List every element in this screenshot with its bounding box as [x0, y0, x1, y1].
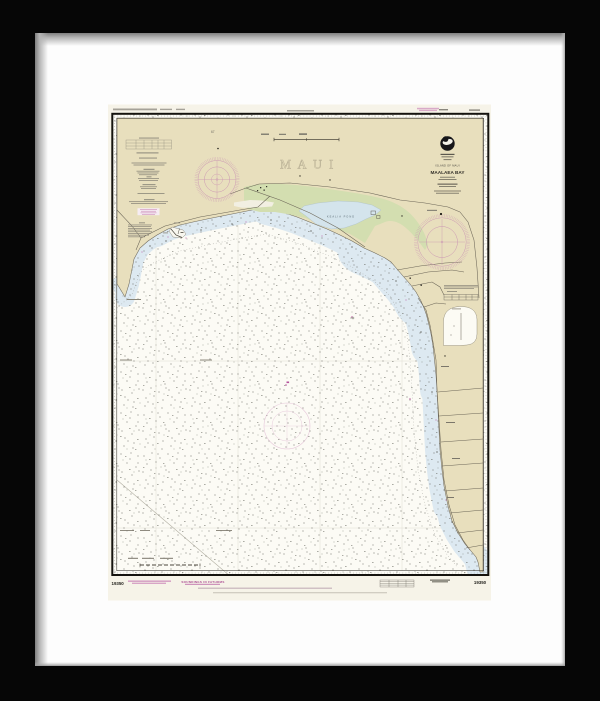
- svg-text:SOUNDINGS IN FATHOMS: SOUNDINGS IN FATHOMS: [181, 580, 224, 584]
- svg-text:ISLAND OF MAUI: ISLAND OF MAUI: [435, 164, 459, 168]
- svg-text:MAALAEA BAY: MAALAEA BAY: [430, 170, 465, 175]
- svg-text:67: 67: [211, 130, 215, 134]
- svg-text:19350: 19350: [112, 581, 125, 586]
- svg-text:KEALIA POND: KEALIA POND: [327, 215, 355, 219]
- svg-text:19350: 19350: [474, 580, 487, 585]
- svg-text:M A U I: M A U I: [280, 158, 335, 172]
